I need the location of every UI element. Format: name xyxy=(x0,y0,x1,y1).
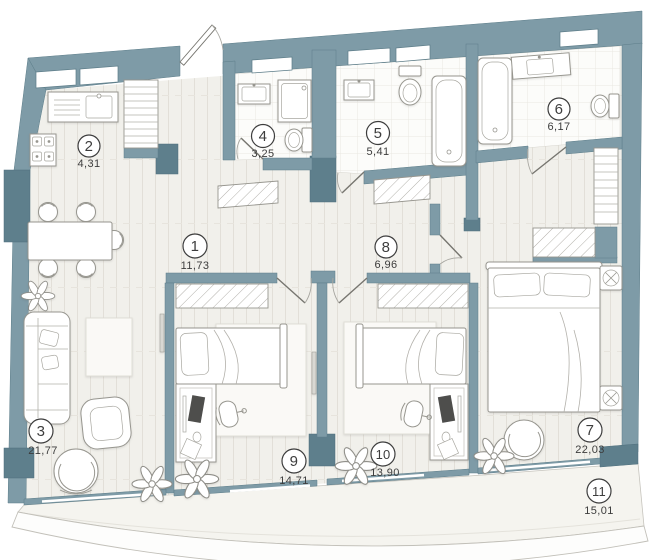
shower-icon xyxy=(278,80,311,122)
svg-text:21,77: 21,77 xyxy=(28,445,58,457)
svg-text:14,71: 14,71 xyxy=(279,475,309,487)
sofa-icon xyxy=(24,312,70,424)
armchair-icon xyxy=(80,396,133,451)
bed-icon xyxy=(176,324,287,388)
sink-icon xyxy=(344,80,374,101)
wardrobe-icon xyxy=(176,284,268,308)
svg-text:11: 11 xyxy=(592,484,606,499)
dining-chair-icon xyxy=(77,259,96,278)
nightstand-icon xyxy=(600,386,622,410)
toilet-icon xyxy=(591,94,619,118)
wardrobe-icon xyxy=(374,175,430,204)
svg-text:6,96: 6,96 xyxy=(374,259,397,271)
sink-icon xyxy=(511,53,571,79)
svg-text:6: 6 xyxy=(555,101,564,118)
stove-icon xyxy=(30,134,56,166)
room-label-5: 5 5,41 xyxy=(366,122,389,159)
svg-text:5: 5 xyxy=(374,125,383,142)
room-label-11: 11 15,01 xyxy=(584,479,614,517)
dining-chair-icon xyxy=(39,203,58,222)
bathtub-icon xyxy=(478,58,512,144)
svg-text:22,03: 22,03 xyxy=(575,444,605,456)
svg-text:7: 7 xyxy=(586,422,595,439)
wardrobe-icon xyxy=(218,181,278,208)
entrance-door-icon xyxy=(180,25,223,65)
round-chair-icon xyxy=(54,449,98,494)
room-label-4: 4 3,25 xyxy=(251,125,274,161)
svg-text:5,41: 5,41 xyxy=(366,146,389,158)
sink-icon xyxy=(238,84,270,105)
room-label-1: 1 11,73 xyxy=(181,234,210,272)
window xyxy=(252,57,292,73)
svg-text:15,01: 15,01 xyxy=(584,505,614,517)
svg-text:3,25: 3,25 xyxy=(251,148,274,160)
room-label-2: 2 4,31 xyxy=(77,135,100,170)
window xyxy=(396,45,430,62)
desk-icon xyxy=(430,384,468,460)
double-bed-icon xyxy=(486,262,602,412)
window xyxy=(36,69,76,88)
svg-text:10: 10 xyxy=(376,447,391,462)
shelf-cabinet-icon xyxy=(124,80,158,148)
wardrobe-icon xyxy=(533,228,595,257)
tv-icon xyxy=(160,314,164,352)
svg-text:1: 1 xyxy=(191,238,200,255)
room-label-8: 8 6,96 xyxy=(374,236,397,271)
svg-text:2: 2 xyxy=(85,138,94,155)
room-label-6: 6 6,17 xyxy=(547,98,570,133)
dining-chair-icon xyxy=(77,203,96,222)
nightstand-icon xyxy=(600,266,622,290)
room-label-7: 7 22,03 xyxy=(575,418,605,456)
tv-icon xyxy=(312,352,316,394)
desk-icon xyxy=(176,384,216,462)
floor-plan-svg: 1 11,73 2 4,31 3 21,77 4 3,25 5 5,41 6 6… xyxy=(0,0,650,560)
svg-text:9: 9 xyxy=(290,453,299,470)
bed-icon xyxy=(356,324,466,388)
window xyxy=(80,66,118,85)
dining-chair-icon xyxy=(39,259,58,278)
svg-text:4,31: 4,31 xyxy=(77,158,100,170)
room-label-9: 9 14,71 xyxy=(279,449,309,487)
faucet-icon xyxy=(97,94,101,98)
dining-table-icon xyxy=(28,222,112,260)
floor-plan-page: 1 11,73 2 4,31 3 21,77 4 3,25 5 5,41 6 6… xyxy=(0,0,650,560)
toilet-icon xyxy=(285,128,312,152)
wardrobe-icon xyxy=(378,284,468,308)
rug-icon xyxy=(86,318,132,376)
svg-text:6,17: 6,17 xyxy=(547,121,570,133)
shelf-cabinet-icon xyxy=(594,148,618,224)
svg-text:11,73: 11,73 xyxy=(181,260,210,272)
svg-text:8: 8 xyxy=(382,239,391,256)
svg-text:4: 4 xyxy=(259,128,268,145)
kitchen-sink-icon xyxy=(86,96,112,118)
bathtub-icon xyxy=(432,76,466,166)
svg-text:3: 3 xyxy=(37,423,46,440)
window xyxy=(560,29,598,47)
svg-text:13,90: 13,90 xyxy=(370,467,400,479)
window xyxy=(348,48,390,65)
toilet-icon xyxy=(399,66,421,105)
